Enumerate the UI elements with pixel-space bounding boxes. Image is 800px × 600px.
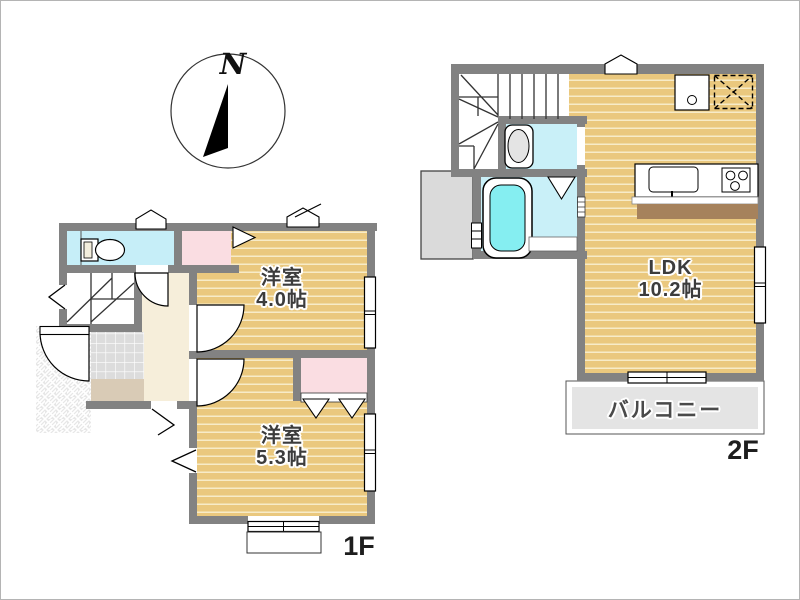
floorplan-page: N 洋室 4.0帖 洋室 5.3帖 LDK 10.2帖 バルコニー 1F 2F bbox=[0, 0, 800, 600]
floorplan-2f bbox=[421, 55, 766, 434]
room-size: 4.0帖 bbox=[197, 289, 367, 311]
bathtub-icon bbox=[483, 178, 532, 258]
room-label-western-5: 洋室 5.3帖 bbox=[197, 425, 367, 469]
room-label-western-4: 洋室 4.0帖 bbox=[197, 267, 367, 311]
hall-back-door-gap bbox=[151, 401, 177, 409]
wall bbox=[756, 64, 764, 247]
window-icon bbox=[248, 522, 319, 533]
wall bbox=[189, 267, 197, 305]
balcony-label: バルコニー bbox=[572, 394, 758, 424]
entrance-door-leaf bbox=[40, 327, 89, 335]
room-size: 5.3帖 bbox=[197, 447, 367, 469]
wall bbox=[756, 323, 764, 381]
wall bbox=[59, 223, 67, 285]
room-label-ldk: LDK 10.2帖 bbox=[585, 257, 756, 301]
wall bbox=[293, 358, 301, 401]
floor-2f-label: 2F bbox=[715, 435, 771, 466]
counter-base bbox=[637, 204, 758, 219]
vent-icon bbox=[136, 210, 166, 229]
wall bbox=[177, 401, 197, 409]
closet-room5 bbox=[301, 358, 367, 393]
ldk-floor bbox=[577, 74, 756, 373]
wall bbox=[189, 351, 197, 359]
closet-room4 bbox=[182, 231, 231, 265]
lower-roof-area bbox=[421, 171, 473, 259]
wall bbox=[498, 169, 587, 177]
kitchen-counter bbox=[632, 164, 758, 219]
room-name: 洋室 bbox=[197, 267, 367, 289]
window-icon bbox=[755, 247, 766, 323]
wall bbox=[706, 373, 764, 381]
wall bbox=[577, 116, 585, 127]
toilet2-door-gap bbox=[577, 127, 585, 165]
bath-window-icon bbox=[472, 223, 482, 248]
wall bbox=[86, 401, 144, 409]
wall bbox=[577, 373, 628, 381]
wall bbox=[319, 516, 375, 524]
window-icon bbox=[628, 372, 706, 383]
vent-icon bbox=[605, 55, 637, 74]
wall bbox=[473, 177, 481, 223]
room-name: 洋室 bbox=[197, 425, 367, 447]
wall bbox=[498, 116, 587, 124]
toilet-icon bbox=[505, 125, 533, 168]
room-size: 10.2帖 bbox=[585, 279, 756, 301]
room-name: LDK bbox=[585, 257, 756, 279]
washstand-counter bbox=[529, 237, 577, 251]
sliding-door-icon bbox=[578, 197, 586, 217]
wall bbox=[451, 64, 459, 177]
floor-1f-label: 1F bbox=[331, 531, 387, 562]
floorplan-1f bbox=[36, 204, 377, 553]
vent-icon bbox=[287, 208, 319, 227]
wall bbox=[59, 265, 136, 273]
wall bbox=[367, 223, 375, 277]
back-door-swing-icon bbox=[152, 409, 174, 435]
wall bbox=[189, 516, 248, 524]
entrance-step bbox=[89, 379, 144, 401]
wall bbox=[367, 348, 375, 414]
toilet-door-gap bbox=[136, 265, 168, 273]
stairs-winder-2f bbox=[459, 74, 498, 169]
compass-north-label: N bbox=[213, 47, 253, 81]
wall bbox=[174, 231, 182, 267]
wall bbox=[451, 169, 506, 177]
wall bbox=[59, 223, 377, 231]
window-box-outline bbox=[247, 532, 321, 553]
washer-icon bbox=[675, 75, 709, 110]
entrance-tile bbox=[89, 332, 144, 379]
sink-icon bbox=[649, 167, 698, 192]
wall bbox=[197, 350, 375, 358]
wall bbox=[189, 405, 197, 448]
